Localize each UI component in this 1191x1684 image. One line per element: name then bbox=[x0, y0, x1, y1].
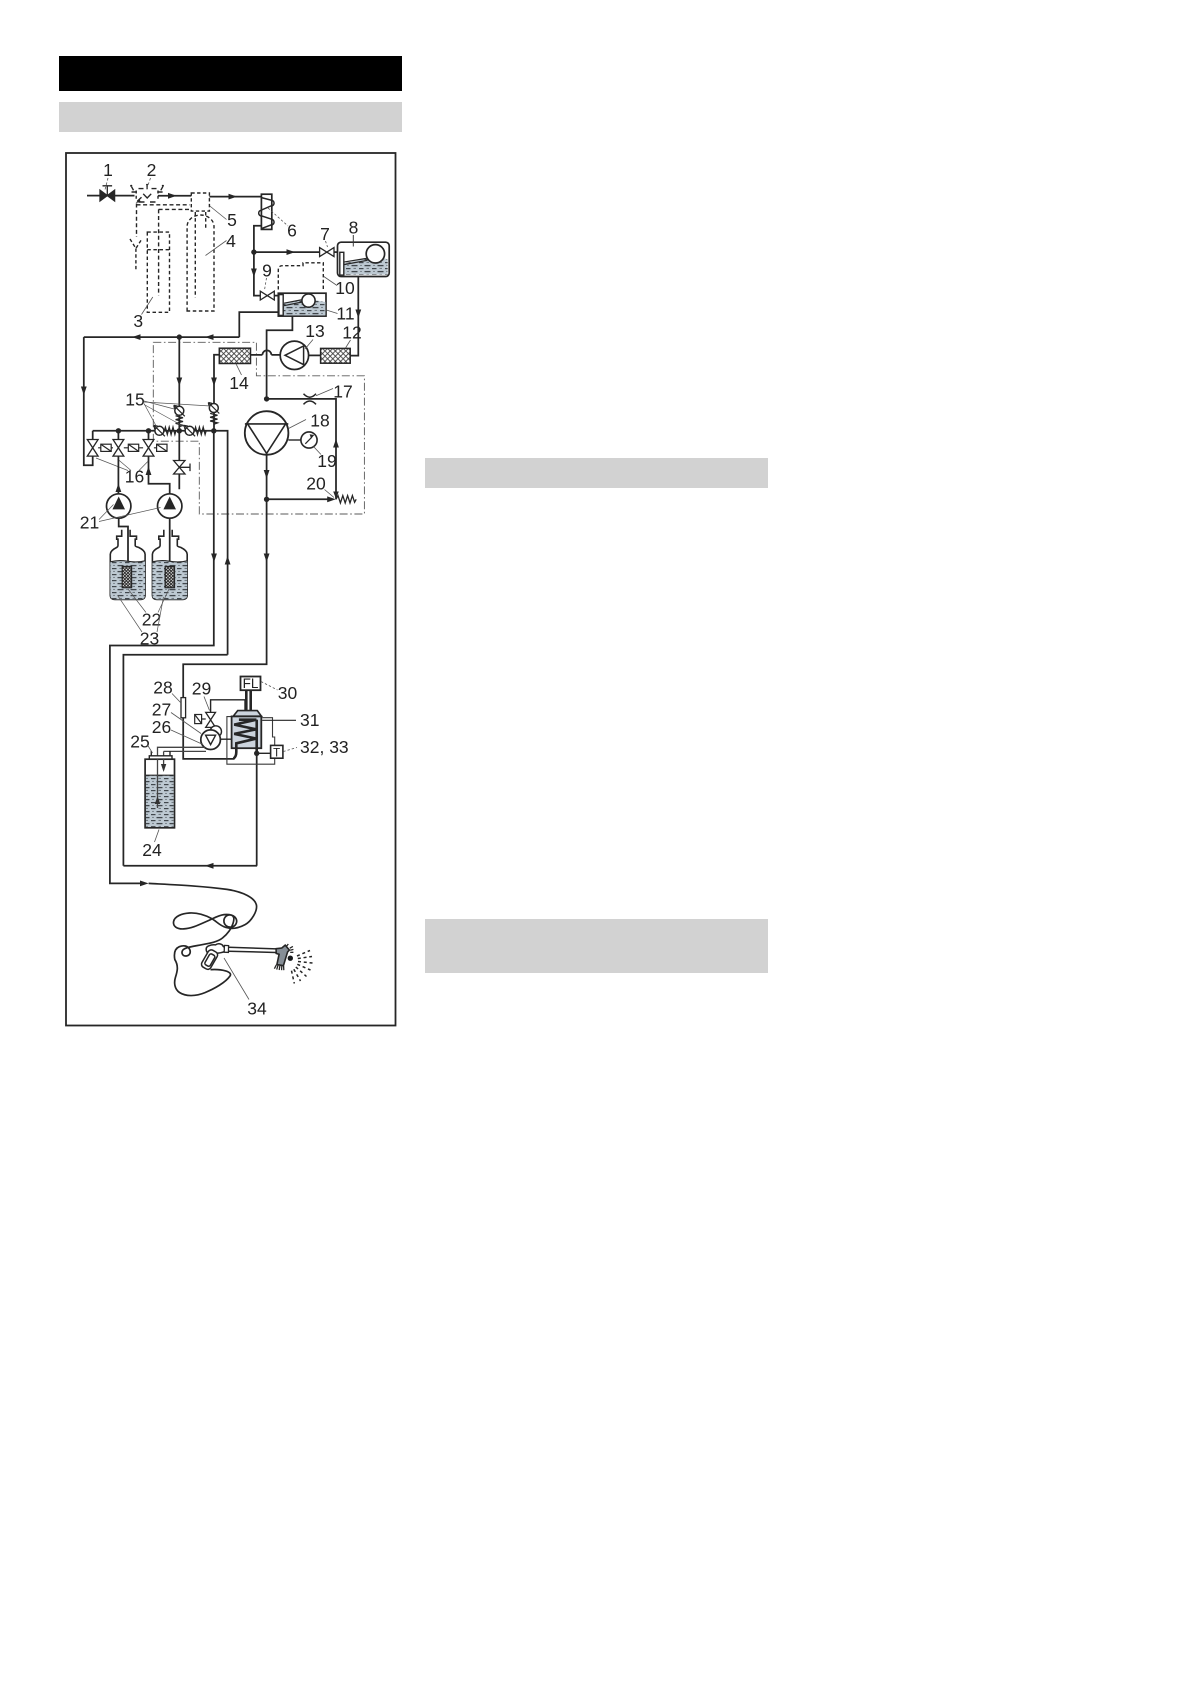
svg-text:15: 15 bbox=[125, 390, 144, 410]
svg-text:1: 1 bbox=[103, 160, 113, 180]
svg-text:21: 21 bbox=[80, 513, 99, 533]
svg-text:28: 28 bbox=[153, 678, 172, 698]
svg-text:FL: FL bbox=[243, 676, 259, 691]
svg-text:24: 24 bbox=[142, 840, 162, 860]
svg-text:12: 12 bbox=[342, 323, 361, 343]
svg-text:13: 13 bbox=[305, 321, 324, 341]
svg-text:10: 10 bbox=[335, 278, 355, 298]
svg-text:T: T bbox=[273, 748, 280, 760]
svg-text:14: 14 bbox=[229, 373, 249, 393]
svg-text:17: 17 bbox=[333, 382, 352, 402]
svg-text:29: 29 bbox=[192, 679, 211, 699]
svg-text:20: 20 bbox=[306, 474, 326, 494]
svg-text:11: 11 bbox=[336, 304, 354, 324]
svg-text:32, 33: 32, 33 bbox=[300, 737, 349, 757]
svg-text:8: 8 bbox=[349, 218, 359, 238]
svg-text:18: 18 bbox=[310, 411, 329, 431]
svg-text:30: 30 bbox=[278, 683, 298, 703]
svg-text:34: 34 bbox=[247, 999, 267, 1019]
svg-text:4: 4 bbox=[226, 231, 236, 251]
svg-text:7: 7 bbox=[320, 224, 330, 244]
svg-text:6: 6 bbox=[287, 221, 297, 241]
svg-text:31: 31 bbox=[300, 710, 319, 730]
svg-text:5: 5 bbox=[227, 210, 237, 230]
svg-text:16: 16 bbox=[125, 467, 144, 487]
svg-text:9: 9 bbox=[262, 261, 272, 281]
svg-text:26: 26 bbox=[152, 717, 171, 737]
svg-text:2: 2 bbox=[147, 160, 157, 180]
svg-text:25: 25 bbox=[130, 732, 149, 752]
